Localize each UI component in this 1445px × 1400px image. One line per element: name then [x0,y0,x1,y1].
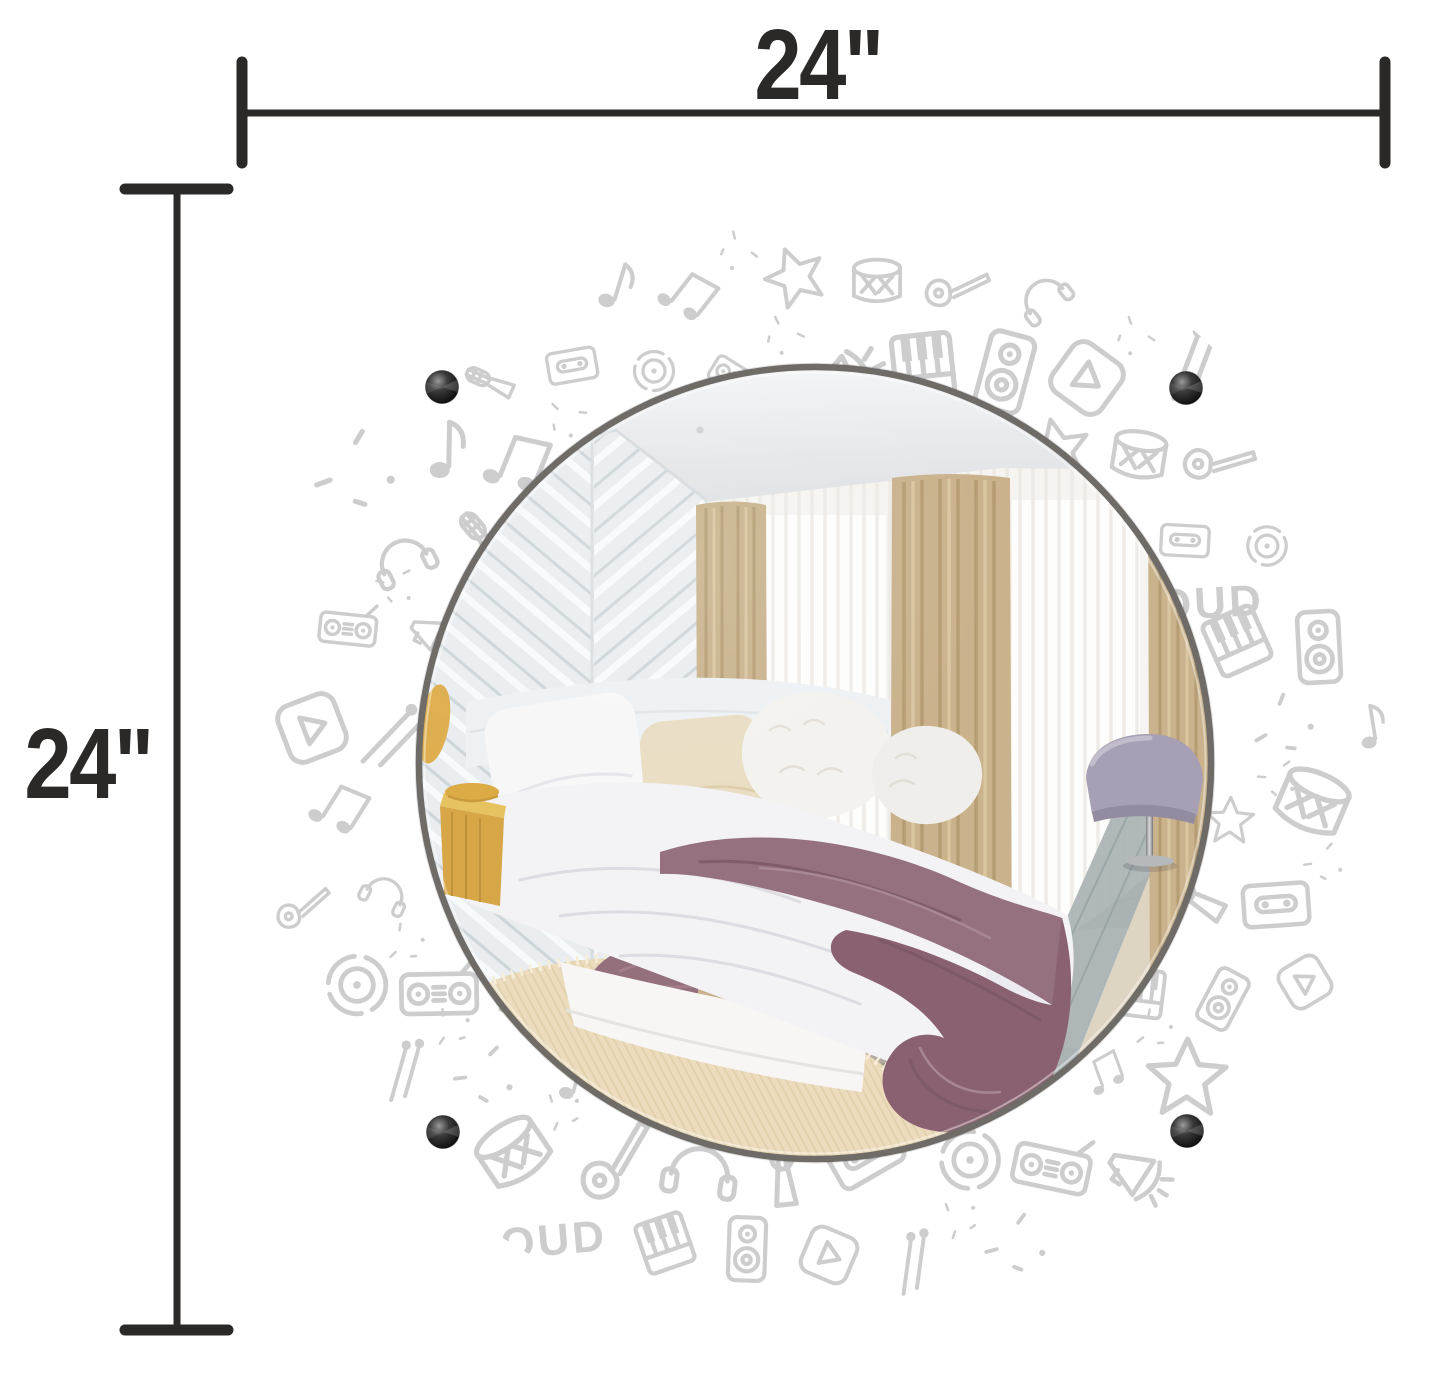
speaker-icon [728,1217,767,1281]
sparkle-icon [452,1046,514,1104]
height-dimension: 24" [24,189,228,1330]
drum-icon [1111,428,1168,481]
boombox-icon [1011,1127,1095,1195]
speaker-icon [1195,966,1252,1033]
cassette-tape-icon [1160,524,1209,557]
vinyl-record-icon [631,348,677,394]
standoff-screw-top-right [1169,372,1202,405]
sparkle-icon [1127,1005,1177,1055]
standoff-screw-top-left [425,371,458,404]
play-button-icon [1275,952,1336,1013]
headphones-icon [1013,269,1075,328]
beamed-notes-icon [655,262,719,327]
music-note-icon [1356,704,1387,749]
play-button-icon [274,690,351,767]
guitar-icon [923,257,991,320]
music-note-icon [597,260,637,313]
drumstick-icon [370,1033,443,1103]
width-dimension-label: 24" [754,8,881,120]
boombox-icon [401,958,477,1014]
standoff-screw-bottom-left [426,1116,459,1149]
piano-keys-icon [634,1211,696,1275]
sparkle-icon [760,310,807,358]
pattern-word: LOUD [469,1211,609,1272]
guitar-icon [1180,425,1257,499]
drum-icon [471,1110,555,1192]
product-dimension-diagram: LOUD LOUD [0,0,1445,1400]
bedroom-reflection [320,290,1220,1168]
diagram-canvas: LOUD LOUD [0,0,1445,1400]
beamed-notes-icon [1083,1051,1127,1097]
drum-icon [1272,762,1353,840]
vinyl-record-icon [1242,521,1293,572]
sparkle-icon [541,392,591,442]
beamed-notes-icon [306,775,370,840]
chair-leg [1146,810,1153,858]
drum-icon [854,260,900,302]
height-dimension-label: 24" [24,707,151,819]
guitar-icon [277,885,329,931]
play-button-icon [797,1223,861,1287]
boombox-icon [318,600,378,646]
vinyl-record-icon [320,948,395,1023]
play-button-icon [1045,336,1129,420]
sparkle-icon [379,919,429,969]
sparkle-icon [1302,843,1343,882]
sparkle-icon [305,427,400,518]
microphone-icon [460,351,518,412]
sparkle-icon [1113,312,1157,358]
guitar-icon [573,1121,661,1200]
drumstick-icon [876,1223,951,1297]
sparkle-icon [937,1198,981,1244]
sparkle-icon [717,227,759,271]
megaphone-icon [1101,1140,1180,1212]
music-note-icon [430,422,464,479]
standoff-screw-bottom-right [1170,1115,1203,1148]
speaker-icon [1297,611,1342,684]
headphones-icon [357,870,412,917]
sparkle-icon [1243,689,1319,763]
cassette-tape-icon [1242,882,1310,928]
cassette-tape-icon [546,346,599,385]
star-icon [758,239,832,312]
width-dimension: 24" [242,8,1385,163]
sparkle-icon [979,1212,1048,1277]
star-icon [1148,1039,1227,1114]
